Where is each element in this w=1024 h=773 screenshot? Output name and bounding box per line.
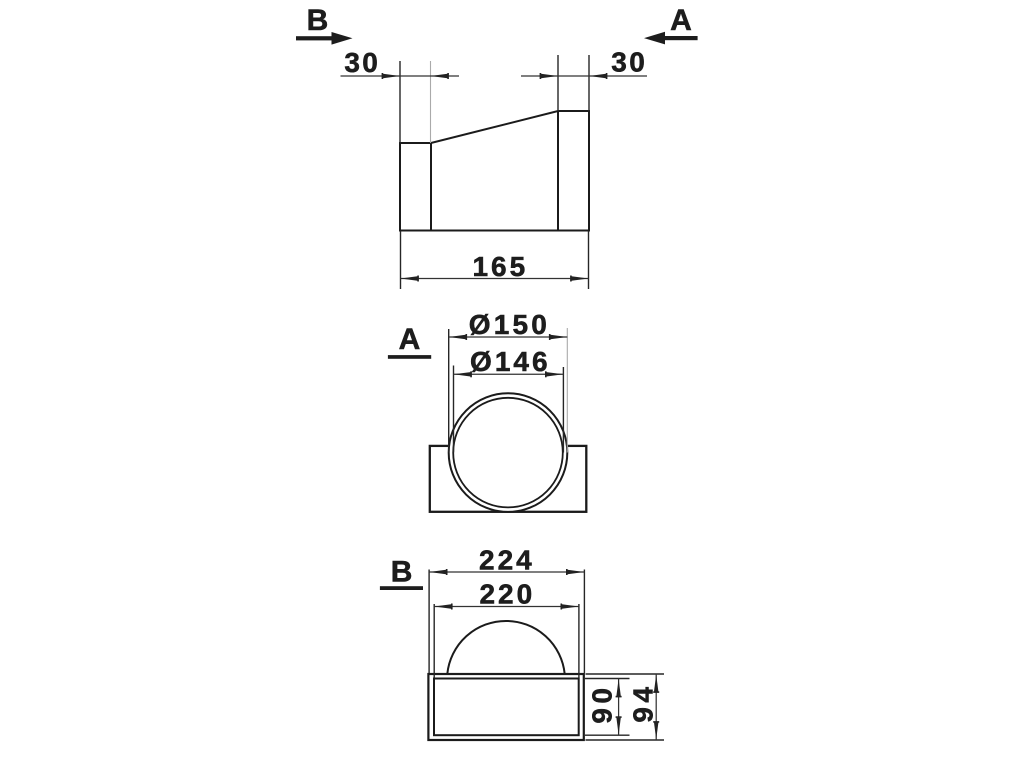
svg-text:30: 30 bbox=[344, 47, 380, 78]
svg-text:B: B bbox=[307, 4, 329, 37]
svg-text:Ø146: Ø146 bbox=[470, 346, 551, 377]
svg-text:165: 165 bbox=[472, 251, 528, 282]
svg-text:224: 224 bbox=[479, 544, 535, 575]
svg-text:A: A bbox=[670, 4, 692, 37]
svg-text:B: B bbox=[391, 555, 413, 588]
svg-text:220: 220 bbox=[479, 578, 535, 609]
svg-text:Ø150: Ø150 bbox=[469, 309, 550, 340]
svg-text:94: 94 bbox=[627, 683, 658, 723]
svg-text:90: 90 bbox=[586, 684, 617, 724]
svg-text:30: 30 bbox=[611, 47, 647, 78]
svg-text:A: A bbox=[399, 323, 421, 356]
